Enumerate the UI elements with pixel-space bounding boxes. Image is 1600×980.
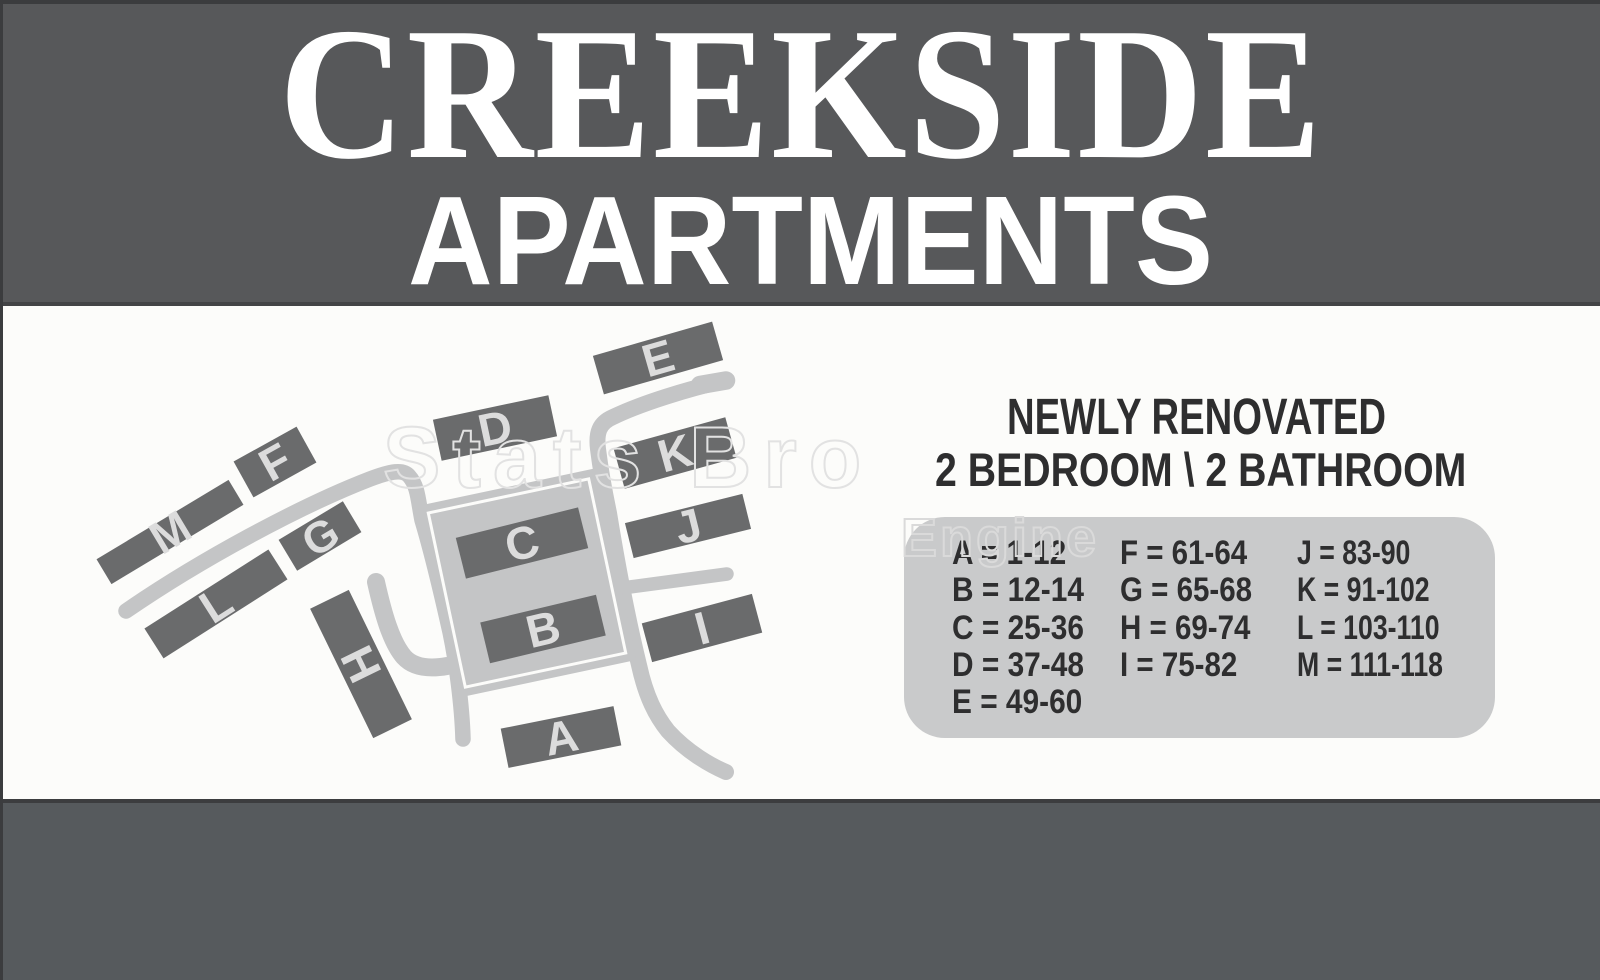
svg-text:Engine: Engine	[901, 508, 1099, 568]
